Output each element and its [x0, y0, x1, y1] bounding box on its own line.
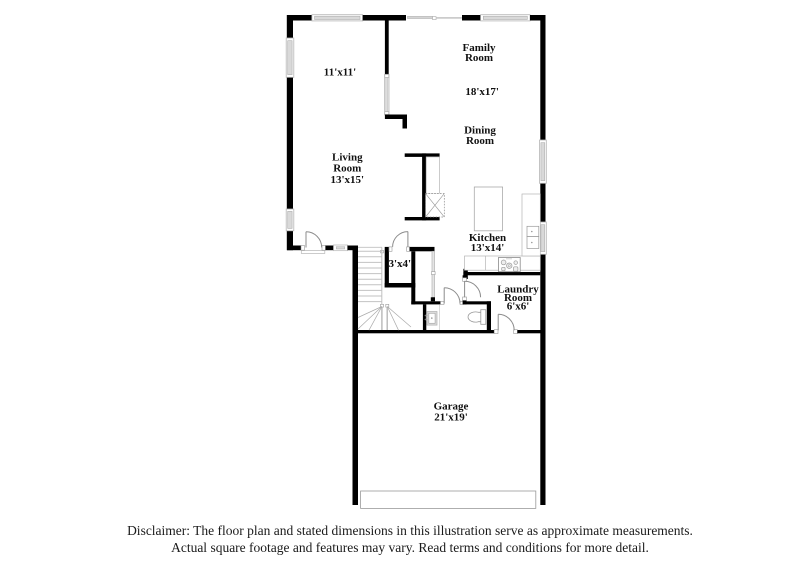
svg-text:Room: Room [465, 52, 493, 64]
svg-text:21'x19': 21'x19' [434, 411, 468, 423]
svg-text:Room: Room [466, 135, 494, 147]
svg-text:Actual square footage and feat: Actual square footage and features may v… [171, 540, 649, 555]
svg-text:6'x6': 6'x6' [507, 300, 530, 312]
svg-text:18'x17': 18'x17' [465, 86, 499, 98]
svg-text:3'x4': 3'x4' [388, 258, 411, 270]
svg-text:13'x14': 13'x14' [471, 242, 505, 254]
svg-text:11'x11': 11'x11' [324, 67, 356, 79]
svg-text:Room: Room [333, 163, 361, 175]
svg-text:13'x15': 13'x15' [330, 174, 364, 186]
svg-text:Disclaimer: The floor plan and: Disclaimer: The floor plan and stated di… [127, 523, 693, 538]
